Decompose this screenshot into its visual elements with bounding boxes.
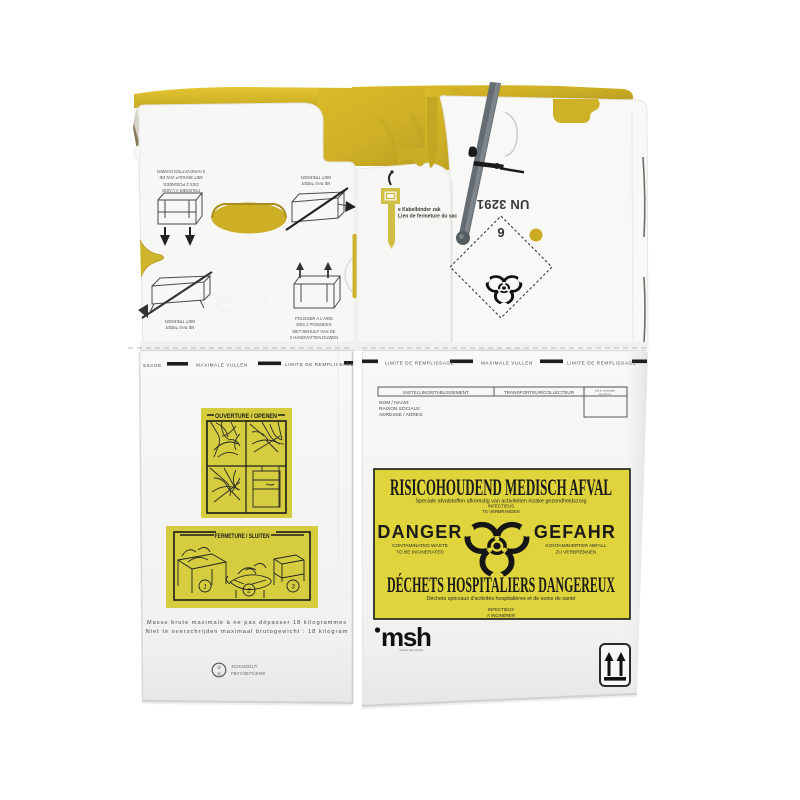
- svg-text:MAXIMALE VULLEN: MAXIMALE VULLEN: [196, 363, 248, 368]
- svg-text:FBVY/3677/JH09: FBVY/3677/JH09: [231, 671, 265, 676]
- svg-text:INSTELLING/ETABLISSEMENT: INSTELLING/ETABLISSEMENT: [403, 390, 469, 395]
- svg-text:DANGER: DANGER: [377, 522, 462, 542]
- svg-text:ADRESSE / ADRES:: ADRESSE / ADRES:: [379, 412, 424, 418]
- svg-text:DÉCHETS HOSPITALIERS DANGEREUX: DÉCHETS HOSPITALIERS DANGEREUX: [387, 572, 615, 597]
- svg-text:6: 6: [497, 225, 504, 240]
- svg-text:Déchets spéciaux d'activités h: Déchets spéciaux d'activités hospitalièr…: [426, 596, 575, 602]
- svg-text:n: n: [217, 672, 220, 678]
- svg-text:u: u: [217, 665, 220, 671]
- svg-text:TRANSPORTEUR/COLLECTEUR: TRANSPORTEUR/COLLECTEUR: [504, 390, 575, 395]
- svg-text:NE PAS TIRER: NE PAS TIRER: [166, 325, 195, 330]
- svg-text:e Kabelbinder zak: e Kabelbinder zak: [398, 207, 441, 213]
- svg-text:2 HANDVATTEN DUWEN: 2 HANDVATTEN DUWEN: [290, 335, 338, 340]
- svg-text:INFECTIEUX: INFECTIEUX: [488, 607, 514, 612]
- svg-text:CONTAMINATED WASTE: CONTAMINATED WASTE: [392, 543, 448, 549]
- svg-text:KONTAMINIERTER ABFALL: KONTAMINIERTER ABFALL: [545, 543, 606, 549]
- svg-text:Lien de fermeture du sac: Lien de fermeture du sac: [398, 214, 457, 220]
- svg-text:À INCINÉRER: À INCINÉRER: [487, 613, 515, 618]
- svg-text:NIET TREKKEN: NIET TREKKEN: [165, 319, 195, 324]
- svg-text:2 HANDVATTEN DUWEN: 2 HANDVATTEN DUWEN: [157, 169, 205, 174]
- svg-text:UN 3291: UN 3291: [477, 197, 530, 212]
- svg-text:RISICOHOUDEND MEDISCH AFVAL: RISICOHOUDEND MEDISCH AFVAL: [390, 475, 612, 500]
- svg-text:op dd/mm: op dd/mm: [599, 392, 612, 396]
- svg-text:2: 2: [246, 588, 251, 595]
- svg-text:LIMITE DE REMPLISSAGE: LIMITE DE REMPLISSAGE: [385, 361, 454, 366]
- svg-text:G: G: [262, 286, 285, 319]
- svg-text:Masse brute maximale à ne pas: Masse brute maximale à ne pas dépasser 1…: [147, 620, 347, 626]
- svg-text:medical safe hospital: medical safe hospital: [399, 648, 424, 652]
- svg-text:Niet te overschrijden maximaal: Niet te overschrijden maximaal brutogewi…: [146, 629, 349, 635]
- svg-text:msh: msh: [381, 622, 431, 652]
- svg-text:ZU VERBRENNEN: ZU VERBRENNEN: [555, 550, 597, 556]
- svg-text:e: e: [215, 282, 234, 320]
- svg-text:DES 2 POIGNEES: DES 2 POIGNEES: [163, 182, 198, 187]
- svg-text:POUSSER A L'AIDE: POUSSER A L'AIDE: [162, 188, 200, 193]
- svg-text:3: 3: [291, 584, 295, 591]
- svg-text:4G/X15/S/17/: 4G/X15/S/17/: [231, 664, 258, 669]
- svg-text:NIET TREKKEN: NIET TREKKEN: [301, 175, 331, 180]
- svg-text:MAXIMALE VULLEN: MAXIMALE VULLEN: [481, 361, 533, 366]
- svg-text:NE PAS TIRER: NE PAS TIRER: [302, 181, 331, 186]
- svg-text:FERMETURE / SLUITEN: FERMETURE / SLUITEN: [215, 533, 270, 540]
- svg-text:TO BE INCINERATED: TO BE INCINERATED: [396, 550, 444, 556]
- svg-text:NOM / NAAM:: NOM / NAAM:: [379, 400, 409, 406]
- svg-text:RAISON SOCIALE:: RAISON SOCIALE:: [379, 406, 421, 412]
- svg-text:SSAGE: SSAGE: [143, 363, 162, 368]
- svg-text:MET BEHULP VAN DE: MET BEHULP VAN DE: [159, 175, 202, 180]
- svg-text:POUSSER A L'AIDE: POUSSER A L'AIDE: [295, 316, 333, 321]
- svg-text:INFECTIEUS: INFECTIEUS: [488, 504, 514, 509]
- svg-text:GEFAHR: GEFAHR: [534, 522, 616, 542]
- svg-text:1: 1: [203, 584, 207, 591]
- svg-text:TE VERBRANDEN: TE VERBRANDEN: [482, 509, 519, 514]
- svg-text:LIMITE DE REMPLISSAGE: LIMITE DE REMPLISSAGE: [285, 362, 354, 367]
- svg-text:MET BEHULP VAN DE: MET BEHULP VAN DE: [292, 329, 335, 334]
- svg-text:OUVERTURE / OPENEN: OUVERTURE / OPENEN: [215, 413, 277, 420]
- svg-text:LIMITE DE REMPLISSAGE: LIMITE DE REMPLISSAGE: [567, 361, 636, 366]
- svg-text:DES 2 POIGNEES: DES 2 POIGNEES: [296, 322, 331, 327]
